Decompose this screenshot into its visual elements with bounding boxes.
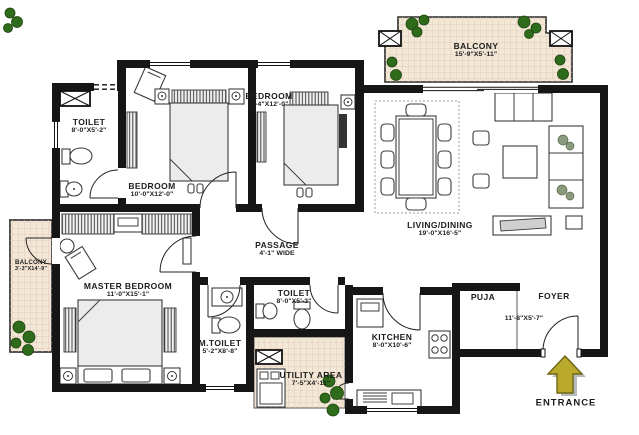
room-size: 4'-1" WIDE: [255, 250, 299, 258]
window: [150, 60, 190, 68]
room-size: 8'-0"X10'-6": [372, 342, 413, 350]
bed-mat: [64, 308, 76, 352]
room-label-toilet-mid: TOILET 8'-0"X5'-3": [277, 288, 312, 306]
plant-cluster: [4, 8, 23, 33]
chair-icon: [406, 198, 426, 210]
pillar-icon: [379, 31, 401, 46]
room-name: KITCHEN: [372, 332, 413, 342]
room-label-master-bedroom: MASTER BEDROOM 11'-0"X15'-1": [84, 281, 172, 299]
shaft-icon: [60, 91, 90, 106]
side-table: [473, 131, 489, 145]
wardrobe-icon: [62, 214, 114, 234]
room-label-passage: PASSAGE 4'-1" WIDE: [255, 240, 299, 258]
slipper: [197, 184, 203, 193]
l-sofa-icon: [549, 126, 583, 208]
stove-icon: [429, 331, 450, 358]
bedside-table: [60, 368, 76, 384]
door-arc: [262, 208, 298, 244]
window: [206, 384, 234, 392]
pillow: [122, 369, 150, 382]
room-size: 5'-2"X8'-8": [199, 348, 242, 356]
bed-icon: [284, 105, 338, 185]
room-size: 19'-0"X16'-5": [407, 230, 473, 238]
room-name: MASTER BEDROOM: [84, 281, 172, 291]
chair-icon: [381, 178, 394, 195]
room-name: FOYER: [538, 291, 569, 301]
slipper: [188, 184, 194, 193]
bed-mat: [164, 308, 176, 352]
window: [367, 406, 417, 414]
basin-icon: [60, 181, 82, 197]
wardrobe-icon: [142, 214, 192, 234]
room-size: 11'-0"X15'-1": [84, 291, 172, 299]
chair-icon: [381, 151, 394, 168]
bedside-table: [164, 368, 180, 384]
furniture-living-dining: [375, 93, 583, 235]
room-size: 8'-0"X5'-2": [72, 127, 107, 135]
slipper: [297, 188, 303, 197]
pillow: [84, 369, 112, 382]
side-table: [473, 174, 489, 188]
bed-headboard: [290, 92, 328, 105]
window: [258, 60, 290, 68]
bedside-table: [341, 95, 355, 109]
chair-icon: [406, 104, 426, 116]
room-name: M.TOILET: [199, 338, 242, 348]
wc-icon: [212, 317, 240, 333]
room-label-foyer: FOYER: [538, 291, 569, 301]
entrance-label: ENTRANCE: [536, 397, 597, 408]
chair-icon: [381, 124, 394, 141]
room-name: BEDROOM: [128, 181, 175, 191]
mirror-icon: [183, 238, 191, 264]
room-label-bedroom-mid: BEDROOM 9'-4"X12'-0": [245, 91, 292, 109]
room-label-balcony-left: BALCONY 3'-3"X14'-9": [15, 259, 47, 273]
room-label-living-dining: LIVING/DINING 19'-0"X16'-5": [407, 220, 473, 238]
furniture-bedroom-left: [127, 67, 244, 193]
pillar-icon: [550, 31, 572, 46]
room-name: BALCONY: [454, 41, 499, 51]
floor-plan: TOILET 8'-0"X5'-2" BEDROOM 10'-0"X12'-0"…: [0, 0, 639, 435]
room-size: 8'-0"X5'-3": [277, 298, 312, 306]
dresser-icon: [114, 214, 142, 232]
door-arc: [383, 293, 420, 330]
room-size: 7'-5"X4'-11": [280, 380, 343, 388]
coffee-table-icon: [503, 146, 537, 178]
wardrobe-icon: [257, 112, 266, 162]
room-label-m-toilet: M.TOILET 5'-2"X8'-8": [199, 338, 242, 356]
room-name: PASSAGE: [255, 240, 299, 250]
room-name: BEDROOM: [245, 91, 292, 101]
room-name: TOILET: [72, 117, 107, 127]
room-label-kitchen: KITCHEN 8'-0"X10'-6": [372, 332, 413, 350]
basin-icon: [256, 303, 277, 319]
room-label-puja: PUJA: [471, 292, 495, 302]
dining-table-icon: [396, 116, 436, 198]
side-unit: [566, 216, 582, 229]
bedside-table: [155, 89, 169, 104]
room-name: BALCONY: [15, 259, 47, 266]
fridge-icon: [357, 299, 383, 327]
room-name: UTILITY AREA: [280, 370, 343, 380]
sofa-icon: [495, 93, 552, 121]
door-arc: [543, 316, 578, 351]
room-label-balcony-top: BALCONY 15'-9"X5'-11": [454, 41, 499, 59]
tall-unit: [339, 114, 347, 148]
room-size: 15'-9"X5'-11": [454, 51, 499, 59]
slipper: [306, 188, 312, 197]
sliding-door: [423, 85, 538, 93]
entrance-arrow-icon: [548, 356, 586, 396]
room-size: 9'-4"X12'-0": [245, 101, 292, 109]
room-label-bedroom-left: BEDROOM 10'-0"X12'-0": [128, 181, 175, 199]
wardrobe-icon: [127, 112, 137, 168]
room-size: 3'-3"X14'-9": [15, 266, 47, 273]
stool-icon: [60, 239, 74, 253]
door-arc: [90, 170, 118, 198]
shaft-icon: [256, 350, 282, 364]
room-name: PUJA: [471, 292, 495, 302]
room-name: LIVING/DINING: [407, 220, 473, 230]
room-label-utility: UTILITY AREA 7'-5"X4'-11": [280, 370, 343, 388]
bed-headboard: [172, 90, 226, 103]
room-size: 10'-0"X12'-0": [128, 191, 175, 199]
window: [52, 122, 60, 148]
room-label-toilet-top: TOILET 8'-0"X5'-2": [72, 117, 107, 135]
tv-unit-icon: [493, 216, 551, 235]
wc-icon: [62, 148, 92, 164]
sink-counter: [357, 390, 421, 407]
chair-icon: [438, 124, 451, 141]
room-name: TOILET: [277, 288, 312, 298]
chair-icon: [438, 178, 451, 195]
room-size-foyer: 11'-8"X5'-7": [505, 315, 543, 323]
bed-icon: [78, 300, 162, 368]
chair-icon: [438, 151, 451, 168]
bedside-table: [229, 89, 244, 104]
door-arc: [310, 285, 338, 313]
bed-icon: [170, 103, 228, 181]
